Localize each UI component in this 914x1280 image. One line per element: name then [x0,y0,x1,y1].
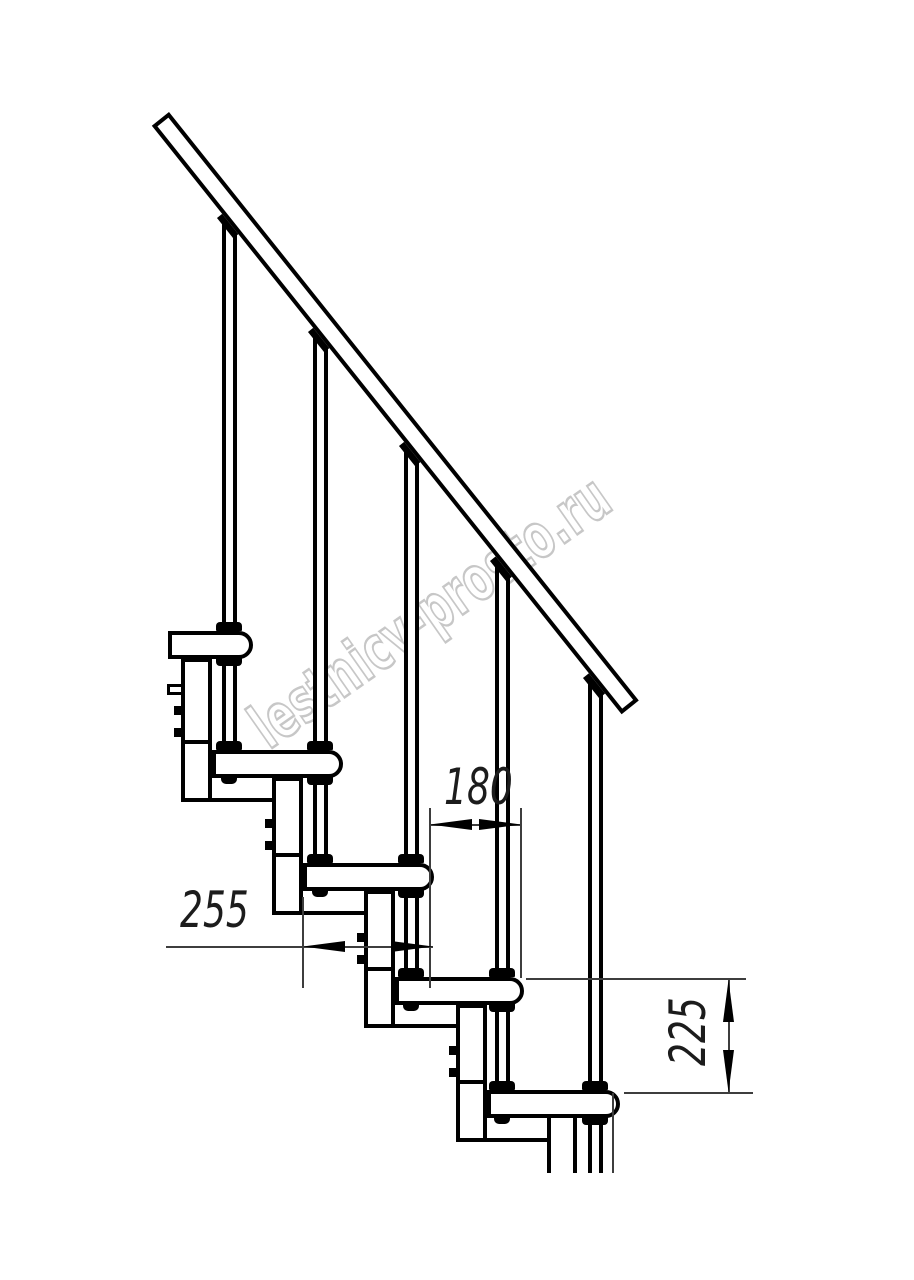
baluster-foot-collar [489,968,515,977]
stringer-module [456,1004,487,1142]
module-divider [456,1080,487,1084]
pipe-foot-collar [307,854,333,863]
fixing-bolt [312,889,328,897]
tread [395,977,524,1005]
module-connector [364,1024,456,1028]
extension-line [520,808,522,978]
bolt-nub [449,1046,457,1055]
pipe-top-collar [307,776,333,785]
dimension-label-180: 180 [444,762,506,812]
stringer-module [181,658,212,802]
baluster-foot-collar [398,854,424,863]
pipe-top-collar [489,1003,515,1012]
module-divider [272,853,303,857]
stringer-module [364,890,395,1028]
dimension-arrow [430,819,472,830]
module-connector [456,1138,548,1142]
stringer-module-cut [547,1117,577,1173]
bolt-nub [357,955,365,964]
extension-line [612,1093,614,1173]
baluster [313,333,328,756]
baluster-foot-collar [307,741,333,750]
fixing-bolt [494,1116,510,1124]
drawing-canvas: lestnicy-prosto.ru [0,0,914,1280]
extension-line [624,1092,753,1094]
module-divider [364,967,395,971]
module-divider [181,740,212,744]
pipe-foot-collar [216,741,242,750]
bolt-nub [449,1068,457,1077]
bolt-nub [174,728,182,737]
tread [487,1090,620,1118]
bolt-nub [265,841,273,850]
tread [303,863,434,891]
fixing-bolt [221,776,237,784]
dimension-label-225: 225 [663,1004,713,1066]
baluster [222,219,237,637]
pipe-foot-collar [398,968,424,977]
bolt-nub [357,933,365,942]
dimension-label-255: 255 [180,885,242,935]
support-pipe [222,657,237,754]
baluster [588,677,603,1096]
baluster-foot-collar [216,622,242,631]
pipe-top-collar [398,889,424,898]
extension-line [526,978,746,980]
module-connector [181,798,273,802]
tread [168,631,253,659]
dimension-arrow [723,980,734,1022]
dimension-arrow [303,941,345,952]
pipe-top-collar [582,1116,608,1125]
stringer-module [272,777,303,915]
module-connector [272,911,364,915]
bolt-nub [174,706,182,715]
baluster-foot-collar [582,1081,608,1090]
fixing-bolt [403,1003,419,1011]
baluster [404,447,419,869]
extension-line [429,808,431,988]
module-connector-cut [167,684,184,695]
extension-line [302,897,304,988]
bolt-nub [265,819,273,828]
pipe-top-collar [216,657,242,666]
dimension-arrow [723,1050,734,1092]
pipe-foot-collar [489,1081,515,1090]
tread [212,750,343,778]
